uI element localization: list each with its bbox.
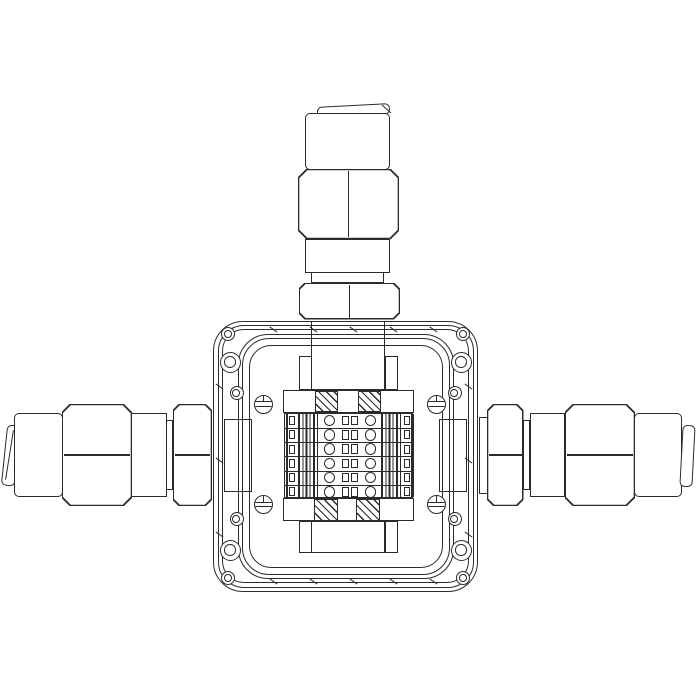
right-gland-compression-nut <box>565 404 636 506</box>
left-gland-neck-taper <box>166 420 173 491</box>
right-gland-washer <box>479 417 488 494</box>
right-gland-neck <box>530 413 566 498</box>
top-gland-locknut <box>299 283 401 320</box>
top-gland-body-cylinder <box>305 113 390 171</box>
right-gland-body-cylinder <box>634 413 682 498</box>
diagram-canvas <box>0 0 700 700</box>
left-gland-neck <box>131 413 167 498</box>
box-seam-line <box>222 329 469 583</box>
top-gland-compression-nut <box>298 169 399 239</box>
left-gland-body-cylinder <box>14 413 63 498</box>
left-gland-compression-nut <box>62 404 133 506</box>
right-gland-sealing-cap <box>679 424 695 487</box>
right-gland-locknut <box>487 404 524 506</box>
left-gland-locknut <box>173 404 213 506</box>
top-gland-neck-taper <box>311 272 384 284</box>
top-gland-neck <box>305 239 391 273</box>
